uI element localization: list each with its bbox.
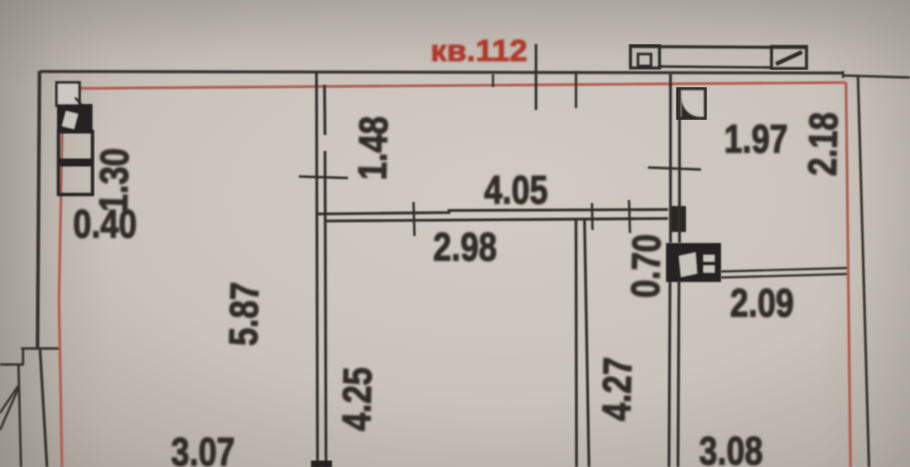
svg-text:4.25: 4.25 xyxy=(334,367,380,432)
svg-text:1.30: 1.30 xyxy=(91,148,137,213)
svg-text:0.70: 0.70 xyxy=(623,234,669,299)
svg-text:3.07: 3.07 xyxy=(171,430,235,467)
svg-text:1.97: 1.97 xyxy=(724,117,788,162)
svg-text:3.08: 3.08 xyxy=(699,429,763,467)
svg-text:кв.112: кв.112 xyxy=(431,32,528,67)
svg-text:2.98: 2.98 xyxy=(433,225,497,270)
svg-text:5.87: 5.87 xyxy=(221,282,267,347)
svg-text:2.09: 2.09 xyxy=(730,281,794,326)
svg-text:1.48: 1.48 xyxy=(350,116,396,181)
svg-text:2.18: 2.18 xyxy=(800,112,846,177)
svg-text:4.05: 4.05 xyxy=(484,168,548,213)
svg-text:4.27: 4.27 xyxy=(594,357,640,422)
